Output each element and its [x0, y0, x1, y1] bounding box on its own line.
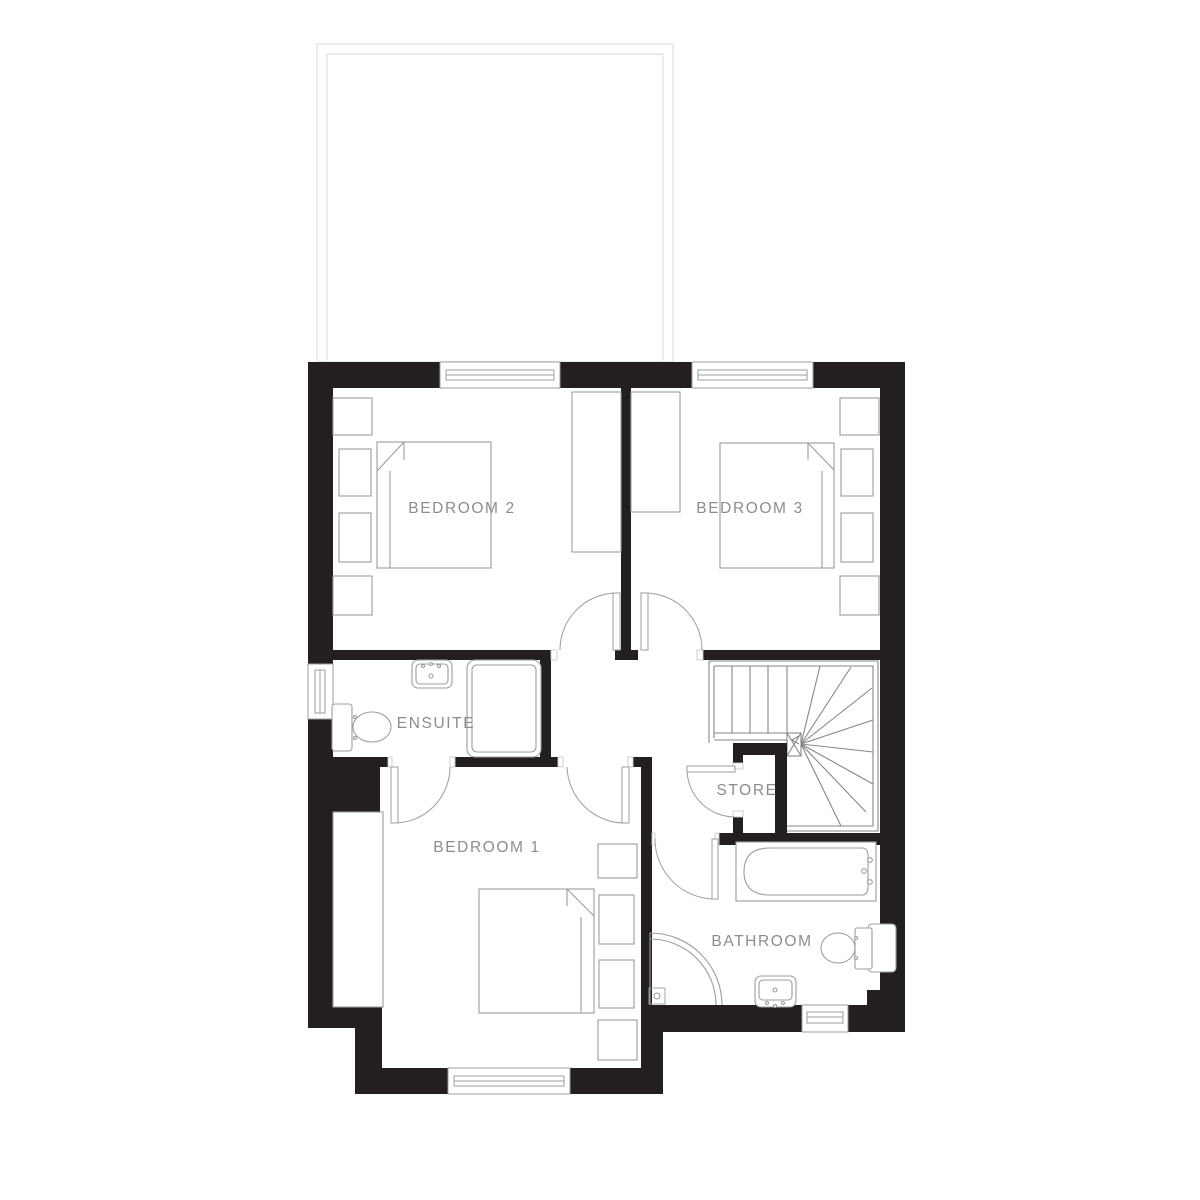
cistern [855, 928, 872, 969]
wall-divider-endcap [615, 650, 638, 660]
wall-bathroom-bottom [641, 1005, 905, 1032]
stair-winders [801, 666, 873, 826]
wall-bedroom2-bottom [333, 650, 557, 660]
storage-unit [599, 895, 634, 944]
door-leaf [613, 593, 620, 650]
wardrobe [631, 392, 680, 512]
label-bedroom-2: BEDROOM 2 [408, 500, 515, 517]
window-bedroom1 [448, 1068, 570, 1094]
window-ensuite [308, 664, 333, 719]
door-bedroom1 [567, 767, 629, 823]
storage-unit [339, 449, 371, 496]
storage-unit [339, 513, 371, 562]
door-bathroom [655, 839, 718, 899]
window-bedroom3 [692, 362, 813, 388]
wall-store-top [733, 743, 775, 755]
door-leaf [687, 766, 735, 772]
wall-store-left-lower [733, 817, 743, 833]
stair-newel-post [787, 733, 801, 756]
washbasin [412, 660, 452, 688]
shower-enclosure [467, 660, 541, 757]
stair-treads [732, 666, 787, 733]
door-leaf [712, 839, 718, 899]
wall-bedroom1-right-lower [641, 1005, 663, 1094]
storage-unit [598, 1020, 637, 1060]
window-bedroom2 [440, 362, 560, 388]
door-swing-arc [655, 839, 715, 899]
storage-unit [598, 844, 637, 878]
storage-unit [333, 576, 372, 615]
toilet [821, 924, 896, 972]
window-bathroom [802, 1005, 848, 1032]
storage-unit [599, 960, 634, 1008]
label-bathroom: BATHROOM [711, 933, 812, 950]
door-swing-arc [560, 593, 617, 650]
drain [429, 674, 433, 678]
faint-outline-outer [317, 44, 673, 362]
storage-unit [333, 398, 372, 435]
toilet [332, 704, 391, 751]
storage-unit [841, 513, 873, 562]
bowl [821, 933, 855, 963]
door-leaf [622, 767, 629, 823]
wall-corner-block [333, 757, 380, 812]
double-bed [479, 889, 594, 1013]
faint-outline-inner [327, 54, 663, 362]
label-bedroom-1: BEDROOM 1 [433, 839, 540, 856]
label-store: STORE [716, 782, 777, 799]
wardrobe [572, 392, 621, 552]
floor-plan-drawing: BEDROOM 2 BEDROOM 3 ENSUITE STORE BEDROO… [0, 0, 1200, 1200]
drain [773, 988, 777, 992]
door-swing-arc [645, 593, 702, 650]
faint-outline [317, 44, 673, 362]
storage-unit [840, 576, 879, 615]
wall-bedroom-divider [621, 388, 631, 650]
wall-bedroom3-bottom [703, 650, 880, 660]
wardrobe [333, 812, 383, 1007]
label-bedroom-3: BEDROOM 3 [696, 500, 803, 517]
door-leaf [391, 767, 398, 823]
floor-plan-canvas: BEDROOM 2 BEDROOM 3 ENSUITE STORE BEDROO… [0, 0, 1200, 1200]
door-bedroom3 [641, 593, 702, 650]
wall-top-exterior [308, 362, 905, 388]
bathroom-fixtures [649, 842, 896, 1008]
storage-unit [840, 398, 879, 435]
bath [736, 842, 876, 901]
door-bedroom2 [560, 593, 620, 650]
wall-ensuite-bottom-b [455, 757, 558, 767]
drain [654, 993, 660, 999]
bowl [353, 712, 391, 742]
ensuite-fixtures [332, 660, 541, 757]
door-swing-arc [567, 767, 625, 823]
door-ensuite [391, 767, 450, 823]
washbasin [755, 976, 796, 1008]
storage-unit [841, 449, 873, 496]
label-ensuite: ENSUITE [397, 715, 475, 732]
door-leaf [641, 593, 648, 650]
cistern [332, 704, 352, 751]
wall-ensuite-right [540, 650, 551, 758]
door-swing-arc [394, 767, 450, 823]
